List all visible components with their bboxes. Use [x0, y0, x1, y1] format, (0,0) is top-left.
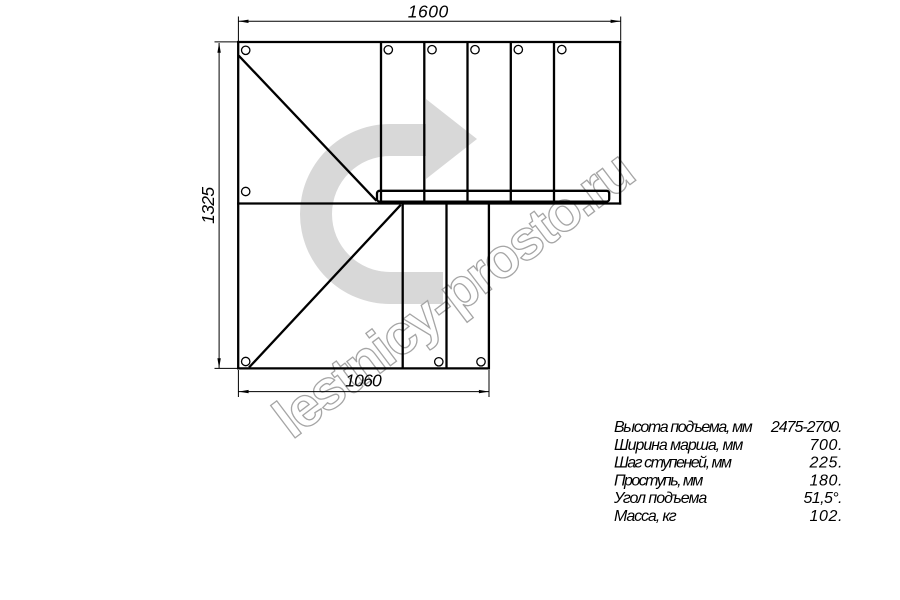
svg-text:180.: 180. — [810, 472, 843, 489]
svg-text:Ширина марша, мм: Ширина марша, мм — [614, 437, 743, 454]
svg-text:1600: 1600 — [408, 1, 449, 21]
svg-text:Угол подъема: Угол подъема — [613, 490, 707, 507]
svg-text:225.: 225. — [809, 455, 843, 472]
svg-text:Масса, кг: Масса, кг — [614, 508, 677, 525]
svg-text:102.: 102. — [810, 508, 843, 525]
svg-text:1325: 1325 — [198, 187, 218, 224]
svg-text:700.: 700. — [810, 437, 843, 454]
svg-text:Проступь, мм: Проступь, мм — [614, 472, 703, 489]
svg-text:1060: 1060 — [345, 370, 382, 390]
svg-text:Высота подъема, мм: Высота подъема, мм — [614, 419, 753, 436]
svg-text:Шаг ступеней, мм: Шаг ступеней, мм — [614, 455, 732, 472]
svg-text:2475-2700.: 2475-2700. — [770, 419, 843, 436]
svg-text:51,5°.: 51,5°. — [804, 490, 843, 507]
